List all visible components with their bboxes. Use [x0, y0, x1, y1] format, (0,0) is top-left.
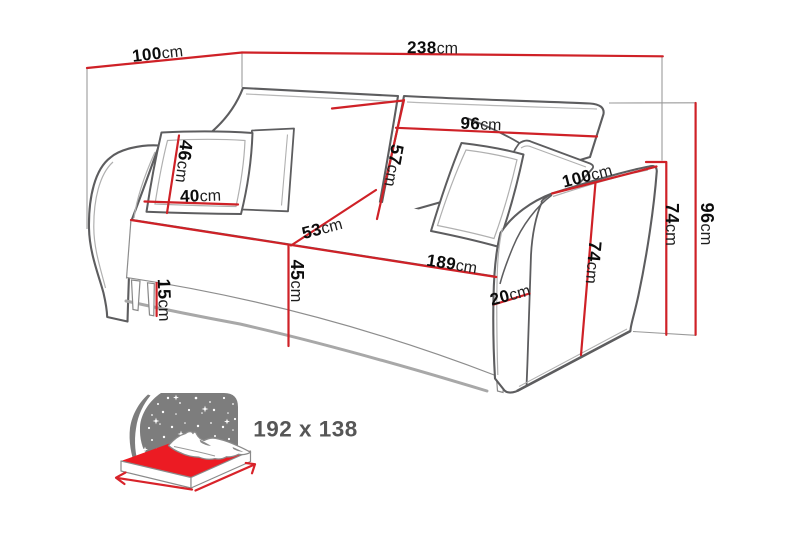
svg-text:96cm: 96cm [697, 203, 717, 246]
svg-text:15cm: 15cm [154, 278, 175, 322]
svg-text:192 x 138: 192 x 138 [253, 417, 358, 442]
svg-text:238cm: 238cm [407, 38, 458, 57]
svg-text:96cm: 96cm [460, 114, 502, 135]
svg-text:45cm: 45cm [287, 260, 307, 303]
svg-text:40cm: 40cm [180, 186, 222, 206]
svg-text:74cm: 74cm [662, 203, 682, 246]
